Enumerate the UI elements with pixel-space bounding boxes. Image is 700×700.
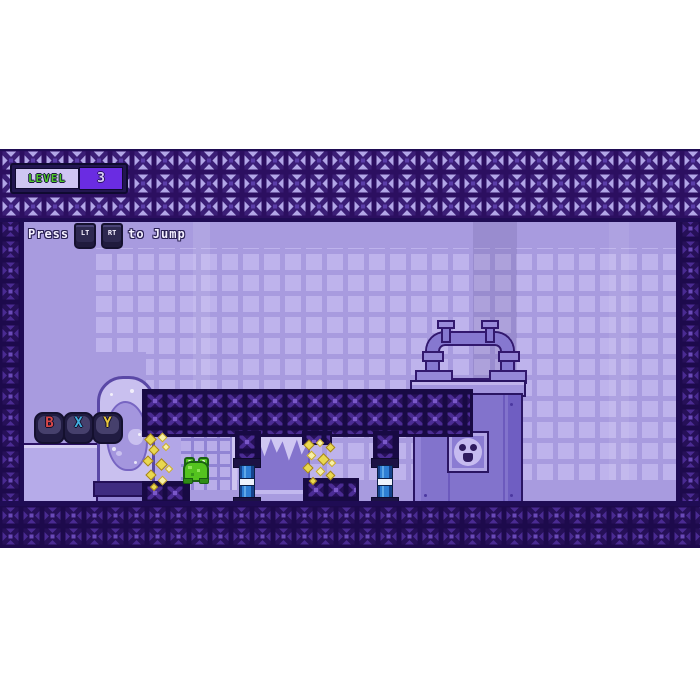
radiation-dot (459, 444, 466, 451)
key-rt-icon: RT (101, 223, 123, 249)
button-label: B (36, 415, 63, 431)
radiation-icon (454, 438, 482, 466)
right-truss-border (680, 218, 700, 505)
level-badge: LEVEL 3 (10, 163, 128, 194)
left-truss-border (0, 218, 20, 505)
pillar-band (239, 478, 255, 486)
frame-line-floor (0, 501, 700, 506)
radiation-dot (470, 444, 477, 451)
bubble (110, 393, 113, 396)
machine-shade (508, 395, 521, 507)
wall-light-band (609, 222, 629, 480)
key-lt-icon: LT (74, 223, 96, 249)
game-viewport[interactable]: B X Y LEVEL 3 (0, 149, 700, 548)
broken-glass-shards (255, 433, 308, 463)
radiation-plate (447, 431, 489, 473)
support-pillar-left (239, 465, 255, 501)
instruction-suffix: to Jump (128, 222, 186, 246)
bubble (130, 389, 134, 393)
girder-platform (142, 389, 473, 437)
rivet (424, 494, 427, 497)
frog-foot (199, 478, 209, 484)
bubble (112, 447, 116, 451)
gamepad-button-b-icon: B (34, 412, 65, 444)
player-frog (183, 457, 209, 482)
frog-spot (197, 469, 200, 472)
pipe-flange-cap (481, 320, 499, 329)
rivet (510, 494, 513, 497)
radiation-wedge (463, 453, 473, 462)
pipe-collar (498, 351, 520, 362)
screenshot-page: B X Y LEVEL 3 (0, 0, 700, 700)
pillar-band (377, 478, 393, 486)
rivet (510, 403, 513, 406)
gamepad-button-x-icon: X (63, 412, 94, 444)
button-label: X (65, 415, 92, 431)
frog-foot (183, 478, 193, 484)
creature-curl (128, 429, 143, 445)
bubble (138, 433, 141, 436)
frame-line-left (20, 218, 24, 505)
support-pillar-right (377, 465, 393, 501)
frog-spot (191, 473, 194, 476)
creature-spot (116, 451, 122, 456)
machine-seam (503, 395, 505, 507)
frame-line-right (676, 218, 680, 505)
gamepad-button-y-icon: Y (92, 412, 123, 444)
pipe-collar (422, 351, 444, 362)
floor-truss (0, 505, 700, 548)
frog-spot (188, 466, 192, 469)
bubble (134, 461, 137, 464)
level-value: 3 (79, 167, 123, 190)
instruction-row: Press LT RT to Jump (28, 222, 186, 248)
level-label: LEVEL (15, 168, 79, 189)
dais-platform (22, 443, 102, 507)
pipe-flange-cap (437, 320, 455, 329)
button-label: Y (94, 415, 121, 431)
frame-line-outer-top (0, 149, 700, 151)
instruction-prefix: Press (28, 222, 69, 246)
